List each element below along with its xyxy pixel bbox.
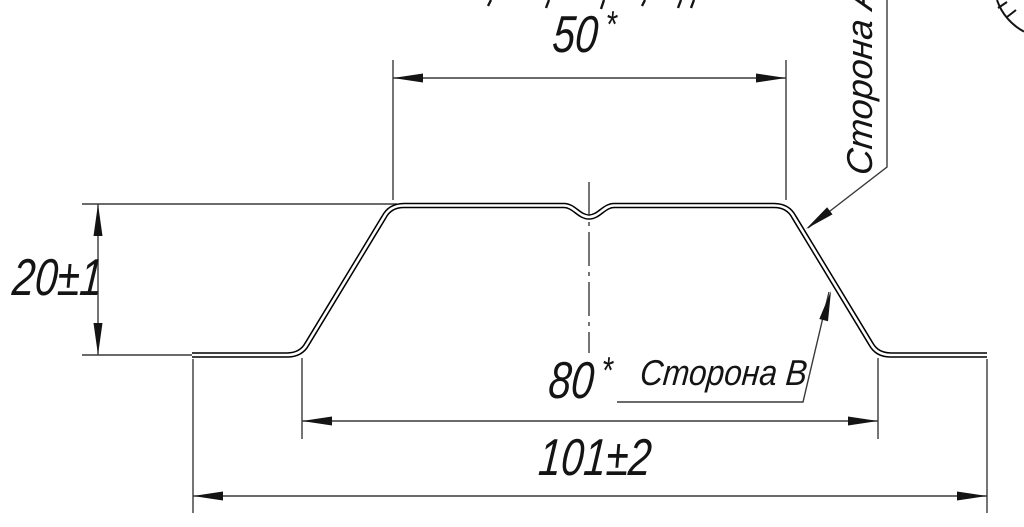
cropped-text-fragments: [488, 0, 694, 9]
arrow-80-right-icon: [848, 417, 878, 426]
cropped-detail-arc: [997, 0, 1024, 32]
arrow-50-left-icon: [393, 74, 423, 83]
technical-drawing-canvas: 50* 20±1 80* 101±2 Сторона В Сторона А: [0, 0, 1024, 527]
arrow-20-down-icon: [94, 323, 103, 355]
arrow-101-right-icon: [957, 492, 987, 501]
dimension-lines-group: [82, 60, 987, 513]
arrow-80-left-icon: [302, 417, 332, 426]
arrow-side-b-icon: [819, 291, 831, 321]
arrow-side-a-icon: [806, 207, 833, 229]
arrow-20-up-icon: [94, 204, 103, 236]
leader-lines-group: [617, 0, 887, 402]
arrow-50-right-icon: [756, 74, 786, 83]
arrowheads-group: [94, 74, 988, 501]
arrow-101-left-icon: [193, 492, 223, 501]
leader-side-a: [808, 0, 887, 228]
leader-side-b: [617, 292, 829, 402]
drawing-geometry: [0, 0, 1024, 527]
